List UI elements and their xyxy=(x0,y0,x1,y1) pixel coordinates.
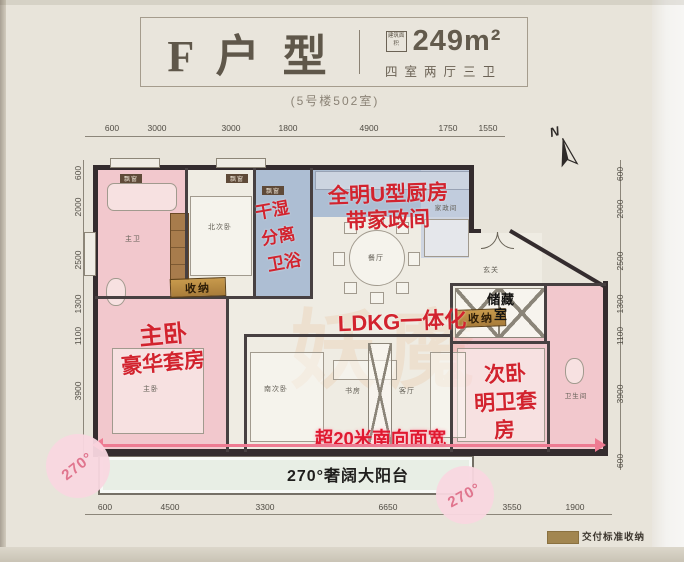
dim-top-5: 1750 xyxy=(428,123,468,133)
dining-chair xyxy=(333,252,345,266)
dim-top-6: 1550 xyxy=(468,123,508,133)
bathtub xyxy=(107,183,177,211)
dining-chair xyxy=(408,252,420,266)
dim-right-1: 2000 xyxy=(615,194,625,224)
width-arrow-line xyxy=(102,444,596,447)
room-label-master-bedroom: 主卧 xyxy=(136,384,166,394)
dim-bottom-5: 1900 xyxy=(553,502,597,512)
photo-edge-right xyxy=(652,0,684,562)
dim-top-1: 3000 xyxy=(137,123,177,133)
annotation-second-line3: 房 xyxy=(481,413,528,445)
wall-segment xyxy=(450,283,606,286)
dim-left-5: 3900 xyxy=(73,376,83,406)
balcony-label: 270°奢阔大阳台 xyxy=(238,462,458,486)
annotation-south-width: 超20米南向面宽 xyxy=(283,425,478,451)
dim-right-6: 600 xyxy=(615,446,625,476)
bay-window-tag: 飘窗 xyxy=(226,174,248,183)
dim-line-bottom xyxy=(85,514,612,515)
dim-bottom-2: 3300 xyxy=(243,502,287,512)
width-arrow-right-head xyxy=(595,438,606,452)
photo-edge-top xyxy=(0,0,684,5)
dim-left-1: 2000 xyxy=(73,192,83,222)
dim-left-3: 1300 xyxy=(73,289,83,319)
wall-segment xyxy=(93,165,98,457)
bay-window xyxy=(110,158,160,168)
wall-segment xyxy=(244,334,247,452)
room-label-master-bath: 主卫 xyxy=(118,234,148,244)
area-label-stamp: 建筑面积 xyxy=(386,31,407,52)
area-value: 249m² xyxy=(413,25,502,58)
room-label-foyer: 玄关 xyxy=(476,265,506,275)
room-label-study: 书房 xyxy=(338,386,368,396)
bed-north-bedroom xyxy=(190,196,252,276)
page-title: F 户 型 xyxy=(141,20,359,84)
room-label-second-bath: 卫生间 xyxy=(558,390,594,400)
dim-top-4: 4900 xyxy=(349,123,389,133)
badge-270-right: 270° xyxy=(436,466,494,524)
room-label-dining: 餐厅 xyxy=(361,253,391,263)
dim-left-0: 600 xyxy=(73,158,83,188)
dim-line-left xyxy=(83,160,84,465)
room-label-storage-room: 储藏室 xyxy=(485,293,517,323)
wall-segment xyxy=(450,341,547,344)
wall-segment xyxy=(226,296,229,452)
room-label-south-bedroom: 南次卧 xyxy=(256,384,296,394)
unit-subtitle: (5号楼502室) xyxy=(240,92,430,109)
bay-window xyxy=(216,158,266,168)
dining-chair xyxy=(370,292,384,304)
legend-label: 交付标准收纳 xyxy=(582,529,645,543)
dining-chair xyxy=(396,282,409,294)
storage-tag: 收纳 xyxy=(170,277,227,298)
room-label-living: 客厅 xyxy=(392,386,422,396)
dim-left-4: 1100 xyxy=(73,321,83,351)
badge-270-left: 270° xyxy=(46,434,110,498)
legend-swatch xyxy=(547,531,579,544)
layout-spec: 四室两厅三卫 xyxy=(385,61,502,80)
bay-window-tag: 飘窗 xyxy=(120,174,142,183)
area-block: 建筑面积 249m² 四室两厅三卫 xyxy=(360,25,527,80)
dim-bottom-3: 6650 xyxy=(366,502,410,512)
dim-right-2: 2500 xyxy=(615,246,625,276)
dim-right-5: 3900 xyxy=(615,379,625,409)
north-compass: N xyxy=(546,120,584,177)
dim-right-3: 1300 xyxy=(615,289,625,319)
dim-top-2: 3000 xyxy=(211,123,251,133)
dim-left-2: 2500 xyxy=(73,245,83,275)
dim-right-4: 1100 xyxy=(615,321,625,351)
wall-segment xyxy=(603,281,608,456)
compass-needle-icon xyxy=(550,134,583,171)
wall-segment xyxy=(544,283,547,343)
badge-270-right-text: 270° xyxy=(446,479,485,510)
dim-line-top xyxy=(85,136,505,137)
toilet-second-bath xyxy=(565,358,584,384)
dim-top-0: 600 xyxy=(92,123,132,133)
room-label-north-bedroom: 北次卧 xyxy=(200,222,240,232)
badge-270-left-text: 270° xyxy=(59,449,97,484)
title-box: F 户 型 建筑面积 249m² 四室两厅三卫 xyxy=(140,17,528,87)
photo-edge-bottom xyxy=(0,547,684,562)
dim-top-3: 1800 xyxy=(268,123,308,133)
wall-segment xyxy=(253,168,256,298)
photo-edge-left xyxy=(0,0,6,562)
dining-chair xyxy=(344,282,357,294)
dim-bottom-4: 3550 xyxy=(490,502,534,512)
dim-bottom-0: 600 xyxy=(83,502,127,512)
dim-right-0: 600 xyxy=(615,159,625,189)
bay-window xyxy=(84,232,96,276)
annotation-ldkg: LDKG一体化 xyxy=(321,301,482,339)
toilet-master xyxy=(106,278,126,306)
dim-bottom-1: 4500 xyxy=(148,502,192,512)
